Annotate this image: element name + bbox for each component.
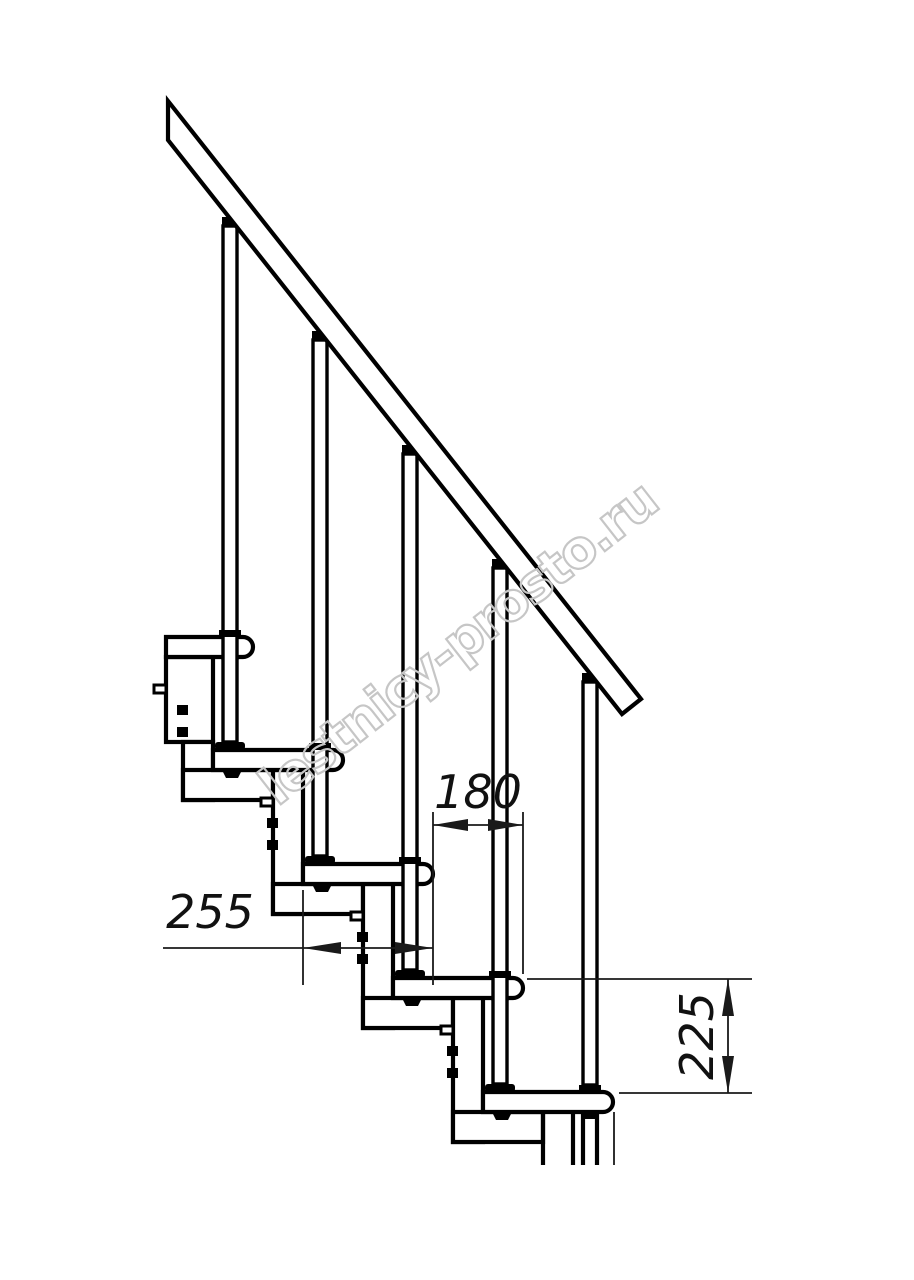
module-4-tab (441, 1026, 453, 1034)
drawing-canvas: 255 180 225 lestnicy-prosto.ru (0, 0, 914, 1280)
tread-5 (483, 1092, 613, 1112)
baluster-1 (223, 226, 237, 742)
dimension-going: 180 (433, 765, 523, 974)
baluster-5 (583, 682, 597, 1085)
going-label: 180 (434, 765, 522, 819)
arrow-left-icon (433, 819, 468, 831)
dimension-rise: 225 (527, 979, 752, 1165)
tread-depth-label: 255 (166, 885, 254, 939)
staircase-drawing: 255 180 225 lestnicy-prosto.ru (0, 0, 914, 1280)
rise-label: 225 (670, 992, 724, 1080)
tread-1 (166, 637, 253, 657)
module-5 (543, 1112, 573, 1165)
module-1-tab (154, 685, 166, 693)
arrow-left-icon (303, 942, 341, 954)
module-3-tab (351, 912, 363, 920)
